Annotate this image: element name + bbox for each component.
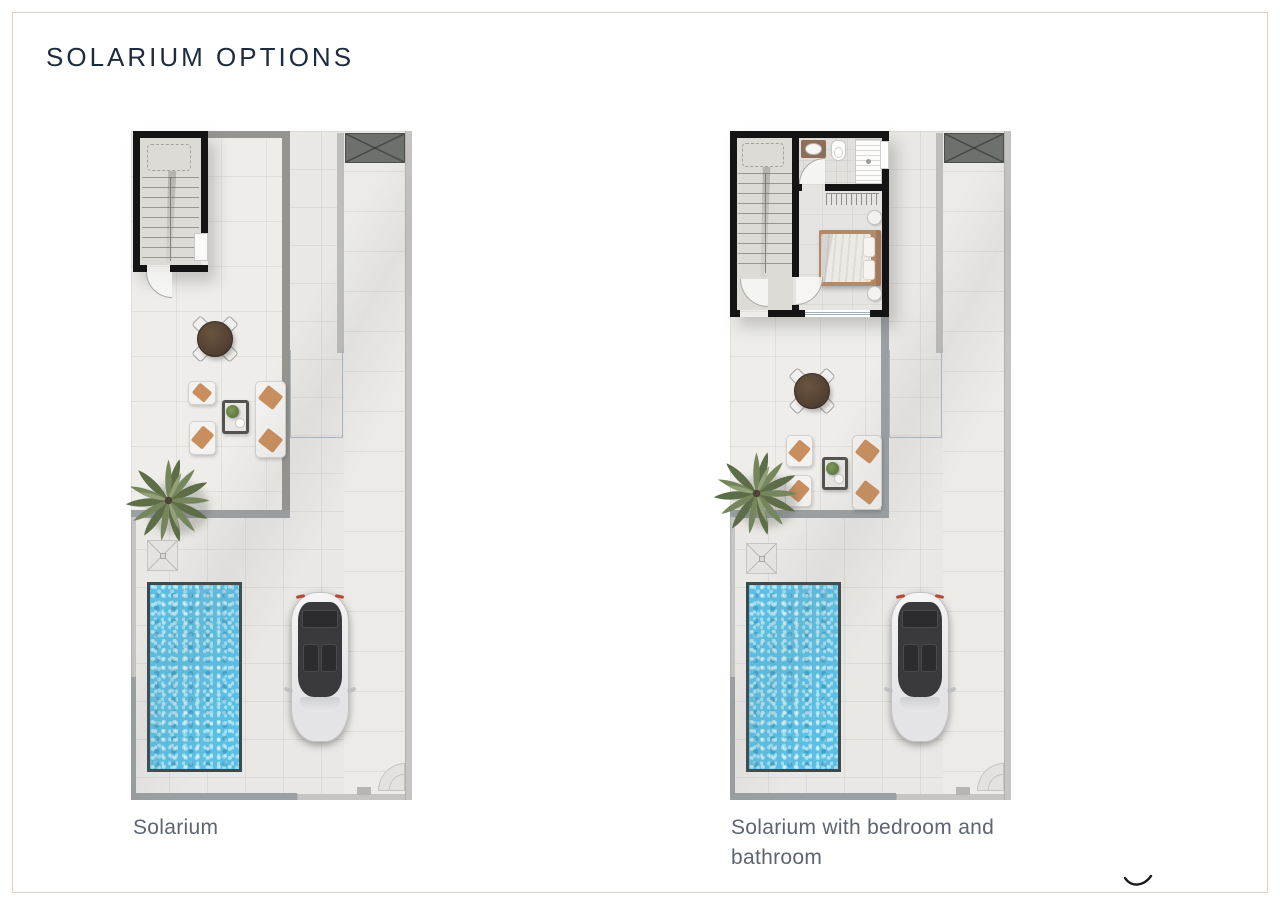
double-bed <box>819 230 881 286</box>
parked-car <box>291 592 349 742</box>
car-roof-glass <box>298 602 342 697</box>
wall <box>936 133 943 353</box>
cushion <box>855 439 880 464</box>
palm-tree <box>121 453 216 548</box>
wall <box>131 677 136 800</box>
wardrobe-rail <box>826 193 879 205</box>
tray <box>834 474 844 484</box>
plant <box>826 462 839 475</box>
sofa <box>255 381 286 458</box>
car-rear-seat <box>302 610 338 628</box>
cushion <box>191 426 215 450</box>
window <box>805 310 870 317</box>
page-title: SOLARIUM OPTIONS <box>46 42 354 73</box>
cushion <box>258 385 283 410</box>
wall <box>870 310 889 317</box>
wall <box>133 131 140 272</box>
bedroom-bathroom-suite <box>730 131 889 317</box>
car-seat <box>921 644 937 672</box>
sink <box>805 143 822 155</box>
bed-headboard <box>876 230 881 286</box>
car-seat <box>321 644 337 672</box>
glass-balustrade <box>889 350 942 438</box>
door <box>194 233 208 261</box>
entry-step <box>956 787 970 795</box>
pillow <box>863 237 875 257</box>
coffee-table <box>222 400 249 434</box>
driveway-floor <box>344 131 405 800</box>
shower <box>855 139 882 184</box>
car-seat <box>903 644 919 672</box>
wall <box>792 184 802 191</box>
stair-landing-outline <box>742 143 784 167</box>
tray <box>235 418 245 428</box>
floorplan-solarium-bedroom-bathroom <box>730 131 1011 800</box>
wall <box>730 131 737 317</box>
wall <box>792 131 799 277</box>
wall <box>133 131 208 138</box>
wall <box>282 131 290 517</box>
void-cross-icon <box>945 134 1003 162</box>
wall <box>730 131 889 138</box>
wall <box>405 131 412 800</box>
swimming-pool <box>746 582 841 772</box>
wall <box>730 793 896 800</box>
dining-table-set <box>194 318 236 360</box>
void-skylight-marker <box>944 133 1004 163</box>
wall <box>730 677 735 800</box>
plant <box>226 405 239 418</box>
wall <box>825 184 889 191</box>
plan-caption: Solarium <box>133 813 218 843</box>
coffee-table <box>822 457 848 490</box>
wall <box>131 793 297 800</box>
round-table <box>794 373 830 409</box>
stair-landing-outline <box>147 144 191 171</box>
plan-caption: Solarium with bedroom and bathroom <box>731 813 1021 873</box>
nightstand <box>867 286 882 301</box>
logo-fragment-icon <box>1122 873 1154 890</box>
wall <box>730 517 735 680</box>
sofa <box>852 435 882 510</box>
nightstand <box>867 210 882 225</box>
car-rear-seat <box>902 610 938 628</box>
wall <box>133 265 147 272</box>
wall <box>730 310 740 317</box>
window <box>880 141 889 169</box>
glass-balustrade <box>290 350 343 438</box>
dining-table-set <box>791 370 833 412</box>
car-windshield <box>900 697 940 712</box>
cushion <box>855 480 880 505</box>
wall <box>1004 131 1011 800</box>
car-windshield <box>300 697 340 712</box>
wall <box>201 138 208 235</box>
void-skylight-marker <box>345 133 405 163</box>
car-seat <box>303 644 319 672</box>
palm-tree <box>709 446 804 541</box>
driveway-floor <box>943 131 1004 800</box>
cushion <box>192 383 212 403</box>
wall <box>170 265 208 272</box>
stairwell <box>133 131 208 272</box>
wall <box>881 317 889 517</box>
wall <box>201 131 290 138</box>
wall <box>337 133 344 353</box>
armchair <box>189 421 216 455</box>
round-table <box>197 321 233 357</box>
armchair <box>188 381 216 405</box>
floorplan-solarium <box>131 131 412 800</box>
wall <box>768 310 805 317</box>
page: SOLARIUM OPTIONS <box>0 0 1280 905</box>
pillow <box>863 260 875 280</box>
wall <box>896 794 1004 800</box>
wall <box>297 794 405 800</box>
entry-step <box>357 787 371 795</box>
bathroom-vanity <box>801 140 826 158</box>
void-cross-icon <box>346 134 404 162</box>
outdoor-shower-pad <box>746 543 777 574</box>
parked-car <box>891 592 949 742</box>
cushion <box>258 428 283 453</box>
toilet <box>831 140 846 161</box>
car-roof-glass <box>898 602 942 697</box>
swimming-pool <box>147 582 242 772</box>
